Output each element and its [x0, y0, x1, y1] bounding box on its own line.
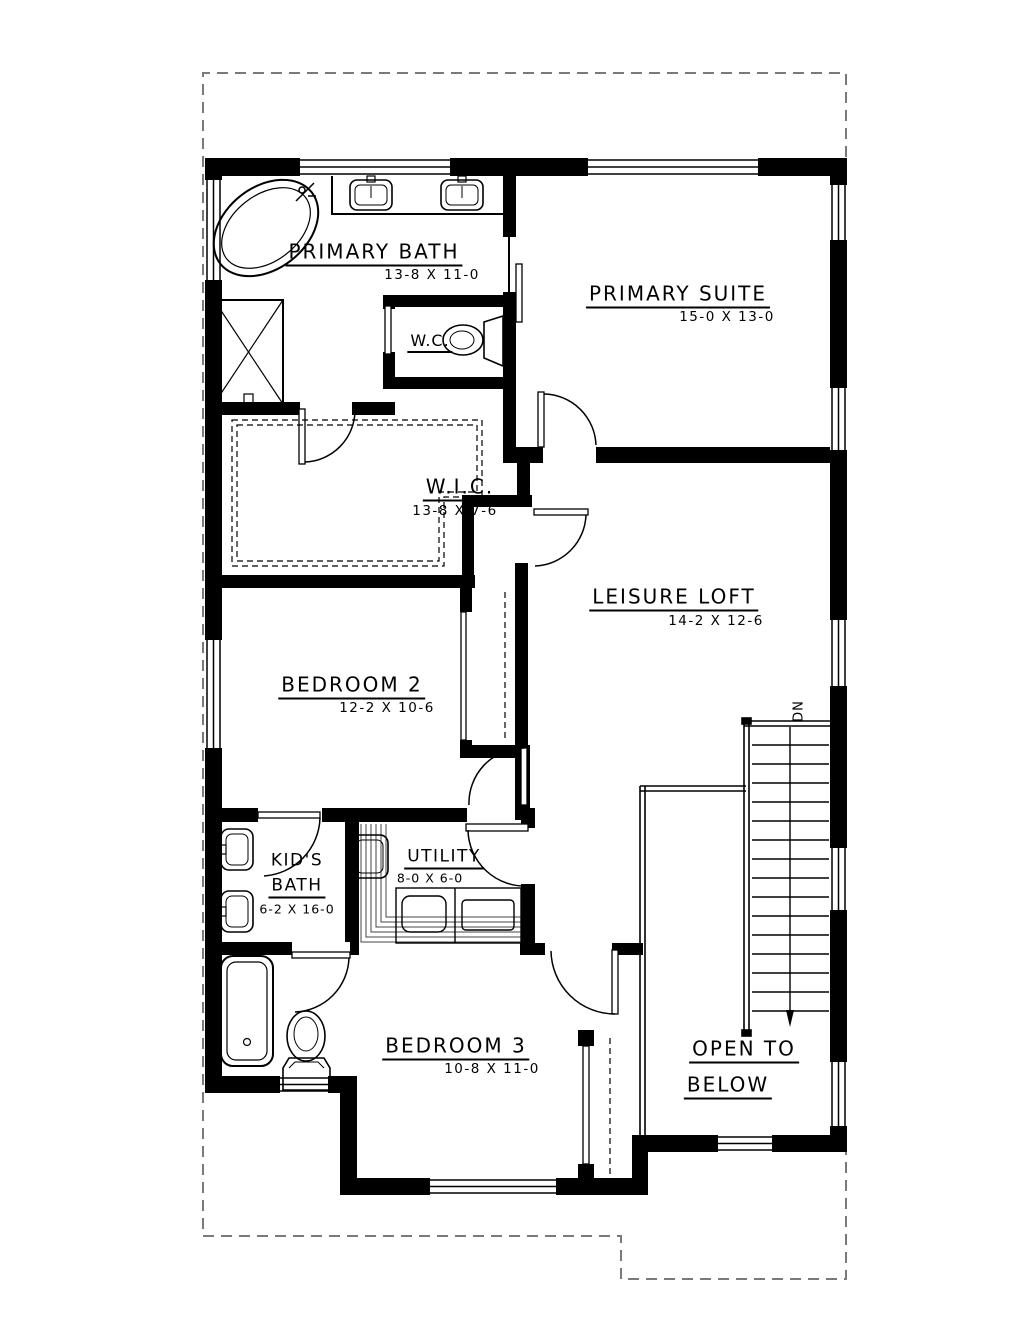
wall [205, 808, 258, 822]
closet-door-bedroom-3 [583, 1046, 589, 1164]
window [300, 158, 450, 176]
wall [578, 1030, 594, 1046]
wall [205, 575, 475, 588]
window [830, 185, 847, 240]
vanity-sink-1 [350, 176, 392, 210]
wall [460, 587, 472, 612]
stair-direction-line [786, 727, 794, 1027]
door-bedroom-3 [551, 950, 618, 1014]
wall [222, 942, 292, 955]
room-label-utility: UTILITY [404, 847, 484, 870]
bathtub [221, 956, 273, 1066]
window [830, 1062, 847, 1126]
wall [517, 463, 530, 497]
wall [503, 447, 543, 463]
room-label-open-to-below-line2: BELOW [684, 1073, 772, 1100]
wall [515, 563, 528, 758]
door-bath-compartment [292, 952, 350, 1012]
window [830, 848, 847, 910]
room-dims-primary-bath: 13-8 X 11-0 [384, 267, 480, 283]
wall [352, 402, 395, 415]
kids-sink-2 [219, 891, 253, 932]
room-dims-wic: 13-8 X 7-6 [412, 503, 498, 519]
closet-door-bedroom-2 [461, 612, 466, 740]
window [205, 640, 222, 748]
stair-rail [742, 718, 830, 1036]
window [430, 1178, 556, 1195]
window [830, 388, 847, 450]
wall [632, 1150, 648, 1195]
wall [578, 1164, 594, 1180]
wall [383, 295, 515, 307]
room-label-wc: W.C. [407, 331, 452, 353]
wall [350, 942, 359, 955]
pocket-door-wc [385, 306, 391, 354]
vanity-sink-2 [441, 176, 483, 210]
stairs-down-label: DN [792, 700, 807, 722]
closet-shelving [232, 420, 610, 1176]
room-label-primary-suite: PRIMARY SUITE [586, 282, 770, 309]
room-label-kids-bath-line2: BATH [268, 876, 325, 899]
washer-dryer [396, 888, 521, 943]
door-primary-suite [538, 392, 596, 447]
room-label-bedroom-2: BEDROOM 2 [278, 673, 425, 700]
wall [503, 158, 516, 237]
room-dims-bedroom-2: 12-2 X 10-6 [339, 700, 435, 716]
wall [520, 943, 545, 955]
door-leisure-loft [534, 509, 588, 566]
room-label-open-to-below-line1: OPEN TO [689, 1037, 799, 1064]
room-dims-utility: 8-0 X 6-0 [397, 871, 463, 886]
kids-sink-1 [219, 829, 253, 870]
window [718, 1135, 772, 1152]
wall [322, 808, 467, 822]
wall [383, 377, 515, 389]
down-arrow [786, 1010, 794, 1027]
room-dims-leisure-loft: 14-2 X 12-6 [668, 613, 764, 629]
wall [205, 158, 222, 1093]
room-label-bedroom-3: BEDROOM 3 [382, 1034, 529, 1061]
room-label-wic: W.I.C. [423, 475, 497, 502]
room-dims-bedroom-3: 10-8 X 11-0 [444, 1061, 540, 1077]
room-label-kids-bath-line1: KID'S [268, 851, 326, 872]
room-label-primary-bath: PRIMARY BATH [285, 240, 462, 267]
door-wic [299, 409, 355, 464]
wall [503, 292, 516, 447]
wall [340, 1076, 357, 1195]
window [588, 158, 758, 176]
room-label-leisure-loft: LEISURE LOFT [589, 585, 758, 612]
floor-plan: PRIMARY BATH 13-8 X 11-0 W.C. PRIMARY SU… [0, 0, 1024, 1325]
wall [596, 447, 830, 463]
room-dims-primary-suite: 15-0 X 13-0 [679, 309, 775, 325]
floor-plan-drawing [0, 0, 1024, 1325]
door-panel [516, 264, 522, 322]
room-dims-kids-bath: 6-2 X 16-0 [259, 902, 334, 917]
stairs [742, 718, 830, 1036]
shower [214, 300, 283, 404]
window [830, 620, 847, 686]
window [205, 180, 222, 280]
